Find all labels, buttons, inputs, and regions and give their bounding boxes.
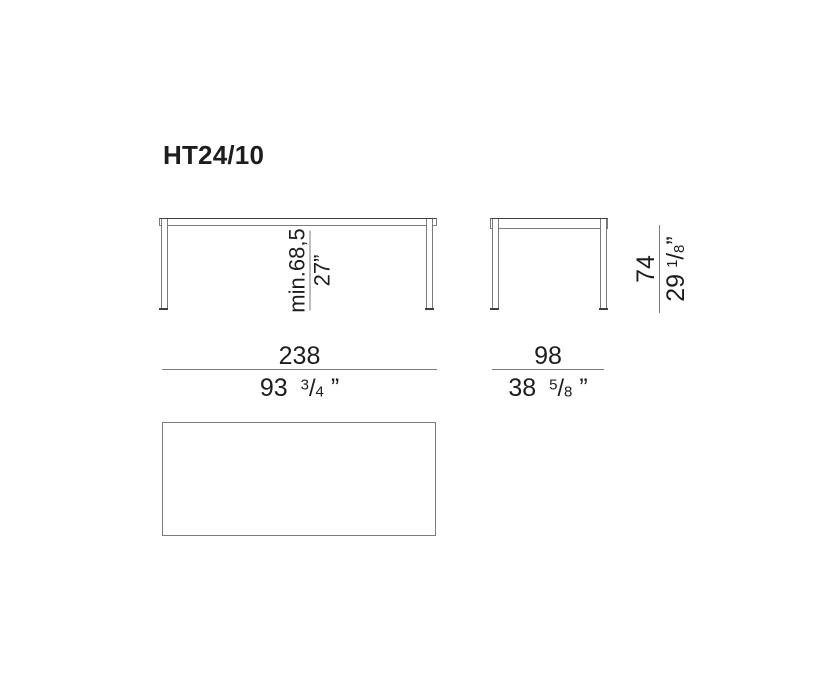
front-width-imperial-label: 93 3/4 ” <box>162 370 437 407</box>
side-leg-left <box>492 219 499 308</box>
front-width-imperial-unit: ” <box>331 374 339 402</box>
page-title: HT24/10 <box>163 140 264 171</box>
side-width-imperial-fraction: 5/8 <box>549 374 572 402</box>
side-width-metric-label: 98 <box>492 343 604 369</box>
height-imperial-fraction: 1/8 <box>660 245 692 268</box>
top-view-outline <box>162 422 436 536</box>
clearance-dimension: min.68,5 27” <box>286 231 335 311</box>
side-foot-right <box>599 308 608 310</box>
front-foot-left <box>159 308 168 310</box>
clearance-imperial-label: 27” <box>311 231 335 311</box>
clearance-metric-label: min.68,5 <box>286 231 310 311</box>
side-width-imperial-unit: ” <box>579 374 587 402</box>
front-tabletop <box>159 218 437 226</box>
front-leg-left <box>161 219 168 308</box>
height-imperial-whole: 29 <box>664 274 689 302</box>
front-width-imperial-fraction: 3/4 <box>301 374 324 402</box>
dimension-drawing-sheet: HT24/10 min.68,5 27” 74 29 1/8 ” 238 <box>0 0 840 679</box>
front-foot-right <box>425 308 434 310</box>
side-width-dimension: 98 38 5/8 ” <box>492 343 604 407</box>
front-width-dimension: 238 93 3/4 ” <box>162 343 437 407</box>
front-width-imperial-whole: 93 <box>260 374 288 402</box>
side-width-imperial-label: 38 5/8 ” <box>492 370 604 407</box>
height-imperial-label: 29 1/8 ” <box>660 225 692 313</box>
height-dimension: 74 29 1/8 ” <box>634 225 692 313</box>
side-foot-left <box>490 308 499 310</box>
height-metric-label: 74 <box>634 225 659 313</box>
height-imperial-unit: ” <box>664 236 689 244</box>
front-leg-right <box>426 219 433 308</box>
front-width-metric-label: 238 <box>162 343 437 369</box>
side-tabletop <box>490 218 608 229</box>
side-width-imperial-whole: 38 <box>508 374 536 402</box>
side-leg-right <box>600 219 607 308</box>
